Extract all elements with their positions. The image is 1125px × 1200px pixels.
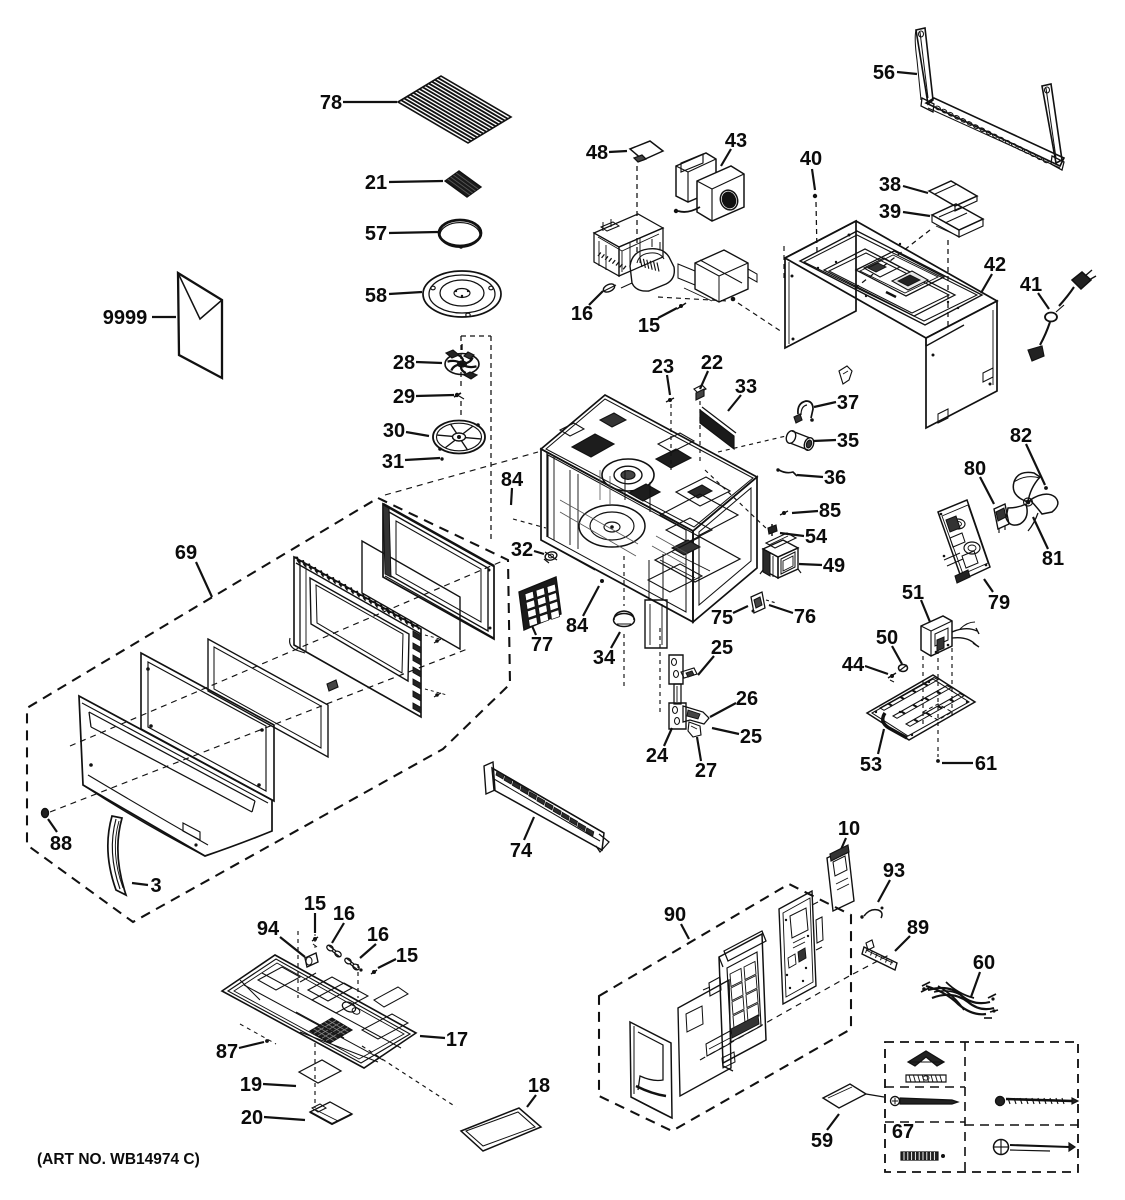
svg-text:33: 33 — [735, 376, 757, 398]
svg-text:38: 38 — [879, 174, 901, 196]
svg-text:84: 84 — [501, 469, 524, 491]
svg-text:25: 25 — [740, 726, 762, 748]
svg-text:40: 40 — [800, 148, 822, 170]
svg-text:58: 58 — [365, 285, 387, 307]
svg-text:16: 16 — [571, 303, 593, 325]
svg-text:15: 15 — [396, 945, 418, 967]
svg-text:56: 56 — [873, 62, 895, 84]
svg-text:49: 49 — [823, 555, 845, 577]
svg-text:93: 93 — [883, 860, 905, 882]
svg-text:24: 24 — [646, 745, 669, 767]
svg-text:82: 82 — [1010, 425, 1032, 447]
svg-text:54: 54 — [805, 526, 828, 548]
svg-text:48: 48 — [586, 142, 608, 164]
svg-text:25: 25 — [711, 637, 733, 659]
svg-text:10: 10 — [838, 818, 860, 840]
svg-text:89: 89 — [907, 917, 929, 939]
svg-text:50: 50 — [876, 627, 898, 649]
svg-text:27: 27 — [695, 760, 717, 782]
svg-text:80: 80 — [964, 458, 986, 480]
svg-text:18: 18 — [528, 1075, 550, 1097]
svg-text:42: 42 — [984, 254, 1006, 276]
svg-text:85: 85 — [819, 500, 841, 522]
svg-text:84: 84 — [566, 615, 589, 637]
svg-text:75: 75 — [711, 607, 733, 629]
svg-text:77: 77 — [531, 634, 553, 656]
svg-text:(ART NO. WB14974 C): (ART NO. WB14974 C) — [37, 1151, 200, 1168]
svg-text:69: 69 — [175, 542, 197, 564]
svg-text:87: 87 — [216, 1041, 238, 1063]
svg-text:16: 16 — [333, 903, 355, 925]
svg-text:35: 35 — [837, 430, 859, 452]
svg-text:28: 28 — [393, 352, 415, 374]
svg-text:79: 79 — [988, 592, 1010, 614]
svg-text:59: 59 — [811, 1130, 833, 1152]
svg-text:43: 43 — [725, 130, 747, 152]
svg-text:26: 26 — [736, 688, 758, 710]
svg-text:76: 76 — [794, 606, 816, 628]
svg-text:67: 67 — [892, 1121, 914, 1143]
svg-text:36: 36 — [824, 467, 846, 489]
svg-text:15: 15 — [638, 315, 660, 337]
svg-text:44: 44 — [842, 654, 865, 676]
svg-text:94: 94 — [257, 918, 280, 940]
svg-text:20: 20 — [241, 1107, 263, 1129]
svg-text:90: 90 — [664, 904, 686, 926]
svg-text:32: 32 — [511, 539, 533, 561]
svg-text:17: 17 — [446, 1029, 468, 1051]
svg-text:88: 88 — [50, 833, 72, 855]
svg-text:53: 53 — [860, 754, 882, 776]
svg-text:74: 74 — [510, 840, 533, 862]
svg-text:22: 22 — [701, 352, 723, 374]
svg-text:60: 60 — [973, 952, 995, 974]
svg-text:29: 29 — [393, 386, 415, 408]
svg-text:30: 30 — [383, 420, 405, 442]
svg-text:37: 37 — [837, 392, 859, 414]
svg-text:23: 23 — [652, 356, 674, 378]
svg-text:3: 3 — [150, 875, 161, 897]
svg-text:81: 81 — [1042, 548, 1064, 570]
svg-text:19: 19 — [240, 1074, 262, 1096]
svg-text:34: 34 — [593, 647, 616, 669]
svg-text:57: 57 — [365, 223, 387, 245]
svg-text:78: 78 — [320, 92, 342, 114]
svg-text:31: 31 — [382, 451, 404, 473]
svg-text:15: 15 — [304, 893, 326, 915]
svg-text:61: 61 — [975, 753, 997, 775]
svg-text:16: 16 — [367, 924, 389, 946]
svg-text:9999: 9999 — [103, 307, 148, 329]
svg-text:21: 21 — [365, 172, 387, 194]
svg-text:39: 39 — [879, 201, 901, 223]
